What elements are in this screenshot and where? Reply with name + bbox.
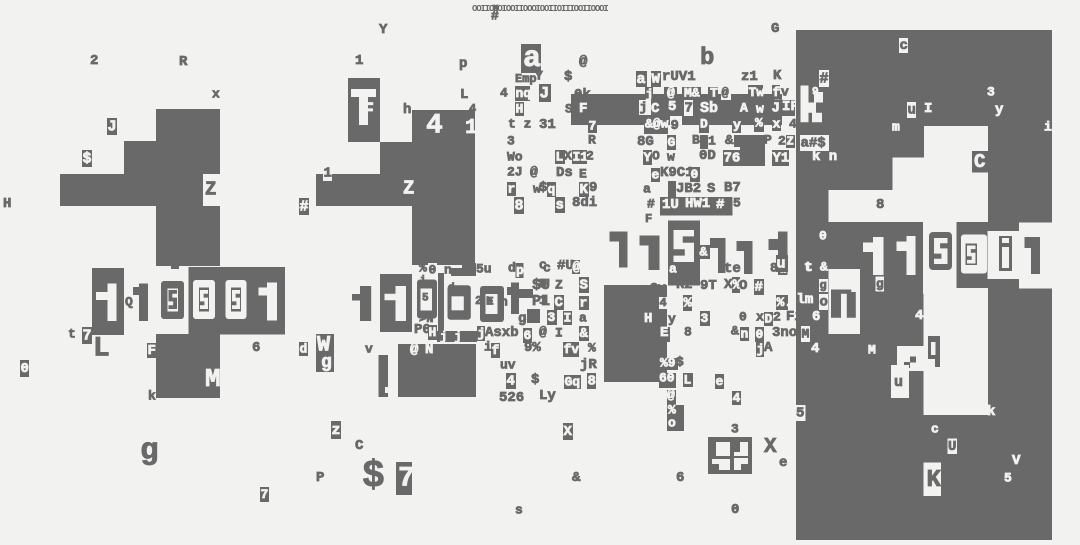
svg-text:%: % (419, 261, 427, 276)
svg-text:H: H (3, 196, 11, 212)
svg-text:U: U (539, 277, 547, 292)
svg-text:2: 2 (778, 134, 786, 149)
svg-text:X: X (764, 436, 777, 459)
svg-text:8di: 8di (572, 195, 597, 211)
svg-text:0: 0 (731, 502, 739, 518)
svg-text:g: g (876, 276, 884, 291)
svg-text:Ly: Ly (539, 388, 556, 404)
svg-text:r: r (580, 295, 588, 310)
svg-text:m: m (892, 120, 900, 135)
svg-text:&: & (572, 470, 581, 486)
svg-text:H: H (644, 311, 652, 327)
svg-text:31: 31 (539, 117, 556, 133)
svg-text:S: S (707, 181, 715, 197)
svg-text:Sb: Sb (700, 100, 718, 117)
svg-text:3: 3 (987, 85, 995, 100)
svg-text:Z: Z (403, 178, 414, 200)
svg-text:3: 3 (507, 134, 515, 149)
svg-text:jR: jR (580, 357, 597, 373)
svg-text:Y: Y (644, 150, 652, 165)
svg-text:K9C1: K9C1 (660, 165, 694, 181)
svg-text:%: % (684, 296, 693, 312)
svg-text:60: 60 (659, 371, 675, 386)
svg-text:9%: 9% (524, 340, 541, 356)
svg-text:S: S (580, 278, 588, 294)
svg-text:k: k (148, 389, 156, 404)
svg-text:7: 7 (685, 101, 693, 117)
svg-text:i: i (420, 275, 426, 287)
svg-text:@: @ (667, 388, 675, 403)
svg-text:0: 0 (756, 327, 764, 342)
svg-text:2J: 2J (507, 165, 523, 180)
svg-text:Y1: Y1 (773, 151, 790, 167)
svg-text:u: u (894, 374, 903, 391)
svg-text:n: n (500, 295, 508, 310)
svg-text:8: 8 (588, 374, 596, 390)
svg-text:b: b (700, 45, 714, 72)
svg-text:Wo: Wo (507, 150, 523, 165)
svg-text:8: 8 (515, 198, 524, 215)
svg-text:b: b (486, 296, 493, 308)
svg-text:a: a (643, 182, 651, 197)
svg-text:g: g (820, 279, 827, 293)
svg-text:W: W (652, 72, 661, 88)
svg-text:J: J (540, 84, 550, 102)
svg-text:%.: %. (777, 295, 793, 310)
svg-text:L: L (684, 372, 692, 387)
svg-text:S: S (565, 102, 573, 117)
svg-text:nq: nq (516, 86, 532, 101)
svg-text:2: 2 (773, 310, 781, 325)
svg-text:d: d (300, 341, 308, 356)
svg-text:4: 4 (500, 86, 508, 101)
svg-text:R: R (588, 133, 596, 148)
svg-text:%: % (755, 116, 763, 131)
svg-text:s: s (556, 198, 564, 214)
svg-text:c: c (539, 258, 547, 273)
svg-text:X: X (564, 149, 572, 164)
svg-text:1: 1 (539, 293, 547, 308)
svg-text:C: C (355, 438, 364, 454)
svg-text:0: 0 (429, 262, 437, 277)
svg-text:rUV1: rUV1 (662, 69, 696, 85)
svg-text:&: & (731, 324, 739, 339)
svg-text:@: @ (539, 325, 547, 340)
svg-text:i: i (1044, 120, 1052, 135)
svg-text:K: K (773, 68, 782, 84)
svg-text:z: z (332, 422, 341, 439)
svg-text:P: P (764, 133, 772, 148)
svg-text:HW1: HW1 (685, 196, 710, 212)
svg-text:@: @ (410, 342, 419, 358)
svg-text:4: 4 (811, 341, 819, 357)
svg-text:3no: 3no (772, 325, 797, 341)
svg-text:Q: Q (125, 295, 133, 310)
svg-text:5: 5 (1004, 471, 1012, 486)
svg-text:L: L (556, 149, 564, 164)
svg-text:te: te (724, 261, 741, 277)
svg-text:p: p (459, 56, 467, 72)
svg-text:n: n (444, 263, 452, 278)
svg-text:fv: fv (564, 342, 580, 357)
svg-text:5: 5 (668, 99, 676, 115)
svg-text:C: C (555, 295, 564, 311)
svg-text:&: & (700, 244, 708, 259)
svg-text:6: 6 (812, 309, 820, 325)
svg-text:G: G (771, 21, 779, 37)
svg-text:a: a (669, 262, 677, 277)
svg-text:a: a (637, 71, 646, 88)
svg-text:gJ: gJ (518, 311, 535, 327)
svg-text:x: x (756, 310, 764, 325)
svg-text:5u: 5u (476, 262, 492, 277)
svg-text:B: B (692, 133, 700, 148)
svg-text:J: J (108, 118, 117, 135)
svg-text:M: M (868, 343, 876, 358)
svg-text:$: $ (83, 151, 92, 168)
svg-text:4: 4 (915, 308, 923, 324)
svg-text:I: I (555, 326, 563, 341)
svg-text:e: e (652, 167, 660, 182)
svg-text:j: j (640, 100, 648, 115)
svg-text:#: # (647, 197, 655, 212)
svg-text:7: 7 (261, 487, 269, 502)
svg-text:H: H (516, 101, 524, 116)
svg-text:Z: Z (787, 135, 794, 149)
svg-text:76: 76 (724, 151, 741, 167)
svg-text:$: $ (676, 355, 684, 370)
svg-text:Emp: Emp (515, 72, 537, 86)
svg-text:D: D (765, 311, 773, 326)
svg-text:#: # (300, 199, 309, 216)
svg-text:e: e (716, 374, 724, 389)
svg-text:V: V (1012, 453, 1021, 469)
svg-text:3: 3 (731, 422, 739, 437)
svg-text:P: P (316, 470, 324, 486)
svg-text:E: E (579, 167, 587, 182)
svg-text:K: K (927, 467, 942, 494)
svg-text:I: I (564, 310, 572, 325)
svg-text:5: 5 (796, 406, 804, 422)
svg-text:D: D (700, 117, 708, 132)
svg-text:g: g (140, 434, 159, 469)
svg-text:0: 0 (819, 229, 827, 244)
svg-text:5: 5 (733, 196, 741, 211)
svg-text:T: T (710, 86, 718, 101)
svg-text:n: n (741, 326, 749, 341)
svg-text:N: N (425, 342, 433, 358)
svg-text:u: u (777, 255, 786, 272)
svg-text:4: 4 (660, 296, 667, 310)
svg-text:O: O (739, 278, 747, 294)
svg-text:c: c (931, 422, 939, 437)
svg-text:4: 4 (789, 117, 797, 132)
svg-text:Y: Y (379, 22, 388, 38)
svg-text:u: u (908, 103, 916, 119)
svg-text:X: X (564, 424, 573, 440)
svg-text:6: 6 (676, 470, 684, 486)
svg-text:9: 9 (589, 180, 597, 196)
svg-text:a: a (579, 311, 587, 326)
svg-text:k: k (987, 404, 995, 420)
svg-text:#: # (820, 71, 829, 88)
svg-text:Y: Y (535, 69, 543, 84)
svg-text:F: F (645, 212, 652, 226)
svg-text:lm: lm (797, 292, 814, 308)
svg-text:4: 4 (733, 390, 741, 405)
svg-text:e: e (779, 455, 787, 471)
svg-text:0: 0 (21, 361, 29, 377)
svg-text:7: 7 (398, 464, 415, 495)
svg-text:526: 526 (499, 390, 524, 406)
svg-text:A: A (764, 340, 773, 356)
svg-text:C: C (651, 101, 660, 117)
svg-text:4: 4 (507, 374, 515, 390)
svg-text:R: R (179, 54, 188, 70)
svg-text:2: 2 (90, 53, 98, 69)
svg-text:1: 1 (355, 53, 363, 69)
svg-text:$: $ (564, 69, 572, 85)
svg-text:j j: j j (440, 330, 462, 344)
svg-text:8: 8 (684, 325, 692, 340)
svg-text:7: 7 (83, 327, 92, 344)
svg-text:E: E (660, 325, 668, 341)
svg-text:Z: Z (205, 179, 216, 201)
svg-text:M: M (205, 364, 221, 394)
svg-text:M&: M& (684, 86, 700, 101)
svg-text:9: 9 (812, 86, 819, 98)
svg-text:o: o (668, 416, 676, 431)
svg-text:&: & (725, 133, 734, 149)
svg-text:2: 2 (586, 149, 594, 164)
svg-text:h: h (403, 102, 411, 118)
svg-text:F: F (148, 343, 156, 359)
svg-text:3: 3 (701, 311, 709, 326)
svg-text:9T: 9T (700, 278, 717, 294)
svg-text:$: $ (362, 455, 385, 498)
svg-text:2: 2 (475, 294, 482, 308)
svg-text:#: # (755, 280, 763, 296)
svg-text:0: 0 (739, 310, 747, 325)
svg-text:9: 9 (671, 118, 679, 134)
svg-text:1: 1 (708, 134, 716, 149)
svg-text:g: g (321, 353, 332, 373)
svg-text:@: @ (722, 86, 729, 100)
svg-text:Ds: Ds (556, 165, 573, 181)
svg-text:x: x (493, 3, 499, 13)
svg-text:L: L (93, 334, 110, 365)
svg-text:#U: #U (557, 258, 574, 274)
svg-text:JB2: JB2 (676, 181, 701, 197)
svg-text:A: A (740, 101, 748, 116)
svg-text:v: v (365, 342, 373, 357)
svg-text:uv: uv (500, 358, 516, 373)
svg-text:@: @ (573, 259, 581, 274)
svg-text:v: v (781, 85, 789, 100)
svg-text:C: C (974, 151, 985, 173)
svg-text:O: O (652, 149, 660, 164)
svg-text:M: M (802, 326, 810, 341)
svg-text:x: x (212, 87, 220, 102)
svg-text:p: p (516, 263, 524, 278)
svg-text:w: w (667, 150, 675, 165)
svg-text:$: $ (539, 180, 547, 196)
svg-text:1: 1 (324, 166, 332, 182)
svg-text:Rz: Rz (676, 277, 693, 293)
svg-text:k n: k n (812, 149, 837, 165)
svg-text:&: & (820, 260, 828, 275)
svg-text:q: q (548, 182, 556, 197)
svg-text:8: 8 (876, 197, 884, 213)
svg-text:0: 0 (691, 167, 699, 182)
svg-text:y: y (668, 312, 676, 327)
svg-text:y: y (995, 102, 1004, 118)
svg-text:$: $ (531, 372, 539, 388)
svg-text:s: s (515, 503, 523, 518)
svg-text:5: 5 (422, 292, 429, 304)
svg-text:1U: 1U (662, 197, 679, 213)
svg-text:H: H (429, 325, 437, 340)
svg-text:o: o (820, 295, 828, 311)
svg-text:z1: z1 (741, 69, 758, 85)
svg-text:U: U (948, 439, 956, 455)
svg-text:F: F (579, 101, 587, 117)
svg-text:F: F (362, 100, 374, 123)
svg-text:@: @ (667, 86, 675, 101)
svg-text:t z: t z (508, 117, 531, 132)
svg-text:d: d (508, 261, 516, 276)
svg-text:c: c (900, 38, 908, 54)
svg-text:x: x (773, 116, 781, 131)
svg-text:f: f (492, 343, 500, 358)
svg-text:7: 7 (589, 118, 597, 133)
svg-text:%9: %9 (660, 356, 676, 371)
svg-text:3: 3 (548, 310, 556, 325)
svg-text:&@w: &@w (645, 117, 669, 132)
svg-text:B7: B7 (724, 180, 741, 196)
svg-text:%: % (588, 341, 596, 356)
svg-text:L: L (460, 87, 468, 103)
svg-text:w: w (756, 102, 764, 117)
svg-text:J: J (772, 101, 780, 117)
svg-text:I: I (924, 101, 932, 117)
svg-text:t: t (805, 260, 813, 275)
svg-text:@: @ (579, 54, 588, 70)
svg-text:Tw: Tw (749, 85, 765, 100)
svg-text:6: 6 (252, 340, 260, 356)
svg-text:G: G (668, 135, 676, 150)
svg-text:t: t (68, 327, 76, 342)
svg-text:#: # (716, 197, 724, 213)
svg-text:0D: 0D (699, 148, 716, 164)
svg-text:r: r (508, 181, 516, 196)
svg-text:Gq: Gq (565, 374, 581, 389)
svg-text:y: y (733, 118, 741, 133)
svg-text:Z: Z (555, 278, 563, 293)
svg-text:@: @ (530, 165, 538, 180)
